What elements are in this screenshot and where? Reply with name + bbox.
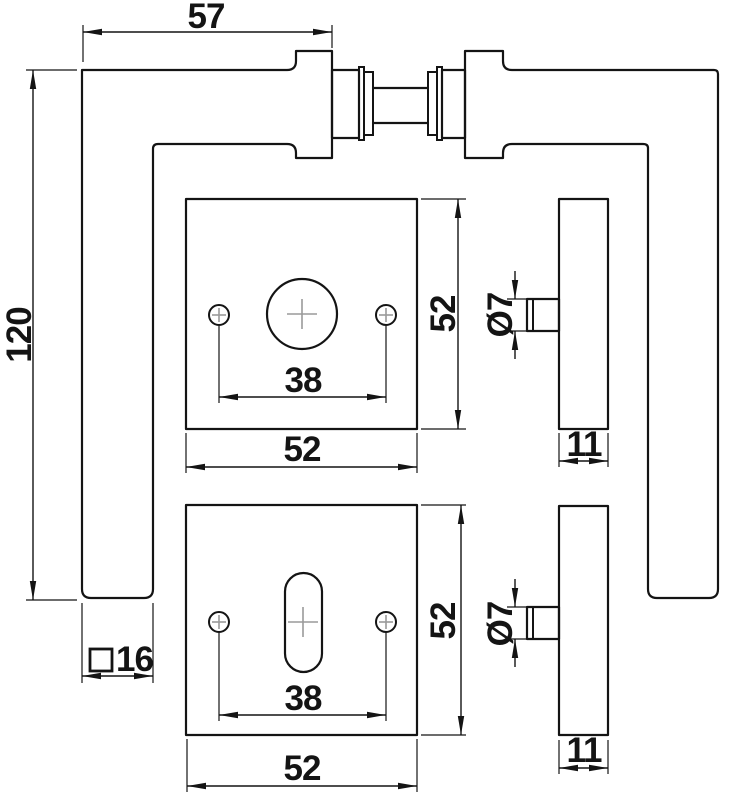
dim-rosette-bottom-width: 52 xyxy=(187,739,417,792)
side-view-bottom: Ø7 11 xyxy=(481,506,608,774)
dim-pin-diameter-top: Ø7 xyxy=(481,271,528,359)
side-view-top: Ø7 11 xyxy=(481,199,608,467)
dim-screw-spacing-bottom-label: 38 xyxy=(285,679,322,718)
side-bottom-rosette-profile xyxy=(559,506,608,735)
collar-ring-right-inner xyxy=(428,72,437,135)
dim-thickness-top: 11 xyxy=(559,425,608,467)
bearing-left xyxy=(332,70,359,138)
dim-spindle-square: 16 xyxy=(82,603,153,683)
screw-hole-right-crosshair xyxy=(379,615,393,629)
dim-pin-diameter-bottom-label: Ø7 xyxy=(481,602,520,647)
dim-thickness-top-label: 11 xyxy=(567,425,603,464)
screw-hole-right-crosshair xyxy=(379,308,393,322)
dim-pin-diameter-top-label: Ø7 xyxy=(481,293,520,338)
bearing-right xyxy=(442,70,465,138)
screw-hole-left-crosshair xyxy=(212,615,226,629)
dim-projection-label: 57 xyxy=(188,0,225,36)
dim-rosette-top-height: 52 xyxy=(421,199,466,429)
rosette-top-bore-crosshair xyxy=(287,299,317,329)
rosette-bottom-key-crosshair xyxy=(288,607,318,637)
dim-rosette-bottom-width-label: 52 xyxy=(284,749,321,788)
collar-ring-left-inner xyxy=(364,72,373,135)
dim-spindle-label: 16 xyxy=(116,640,153,679)
side-top-rosette-profile xyxy=(559,199,608,429)
dim-thickness-bottom: 11 xyxy=(559,731,608,774)
dim-projection: 57 xyxy=(83,0,332,62)
side-bottom-pin xyxy=(527,607,559,639)
rosette-bottom-view: 38 52 52 xyxy=(186,505,466,792)
dim-pin-diameter-bottom: Ø7 xyxy=(481,579,528,667)
dim-screw-spacing-bottom: 38 xyxy=(219,632,386,721)
dim-rosette-top-width-label: 52 xyxy=(284,430,321,469)
collar-ring-right-outer xyxy=(437,67,442,140)
screw-hole-left-crosshair xyxy=(212,308,226,322)
dim-rosette-top-height-label: 52 xyxy=(424,295,463,332)
dim-screw-spacing-top: 38 xyxy=(219,326,386,403)
door-handle-drawing: 57 120 16 xyxy=(0,0,730,800)
technical-drawing-canvas: 57 120 16 xyxy=(0,0,730,800)
dim-rosette-bottom-height-label: 52 xyxy=(424,602,463,639)
square-section-symbol xyxy=(90,649,112,671)
side-top-pin xyxy=(527,299,559,331)
handle-left-outline xyxy=(82,51,332,598)
rosette-top-view: 38 52 52 xyxy=(186,199,466,473)
dim-length: 120 xyxy=(0,70,77,600)
dim-screw-spacing-top-label: 38 xyxy=(285,361,322,400)
plan-view: 57 120 16 xyxy=(0,0,718,683)
dim-thickness-bottom-label: 11 xyxy=(567,731,603,770)
dim-rosette-top-width: 52 xyxy=(186,430,417,473)
dim-length-label: 120 xyxy=(0,307,39,363)
dim-rosette-bottom-height: 52 xyxy=(421,505,466,735)
